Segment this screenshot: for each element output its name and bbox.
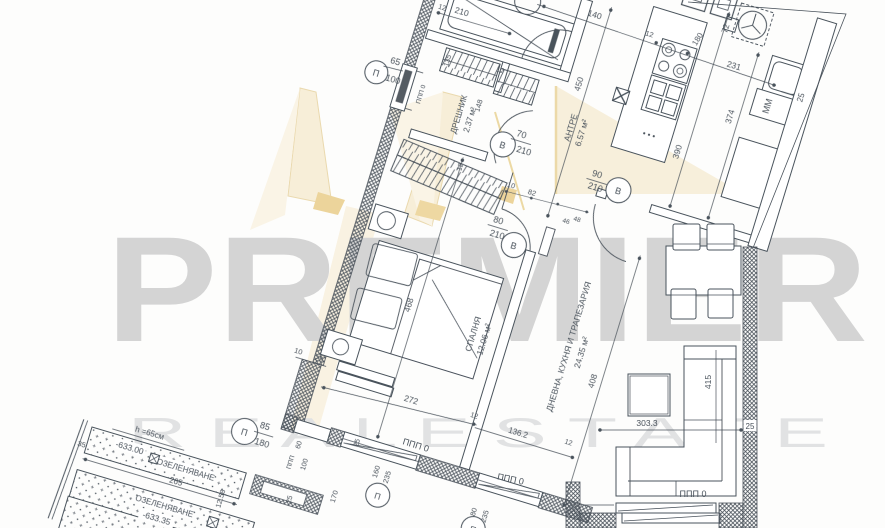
svg-text:303.3: 303.3 xyxy=(636,418,658,428)
svg-text:415: 415 xyxy=(703,375,713,389)
svg-text:ППП 0: ППП 0 xyxy=(680,489,707,499)
svg-text:25: 25 xyxy=(746,422,755,431)
